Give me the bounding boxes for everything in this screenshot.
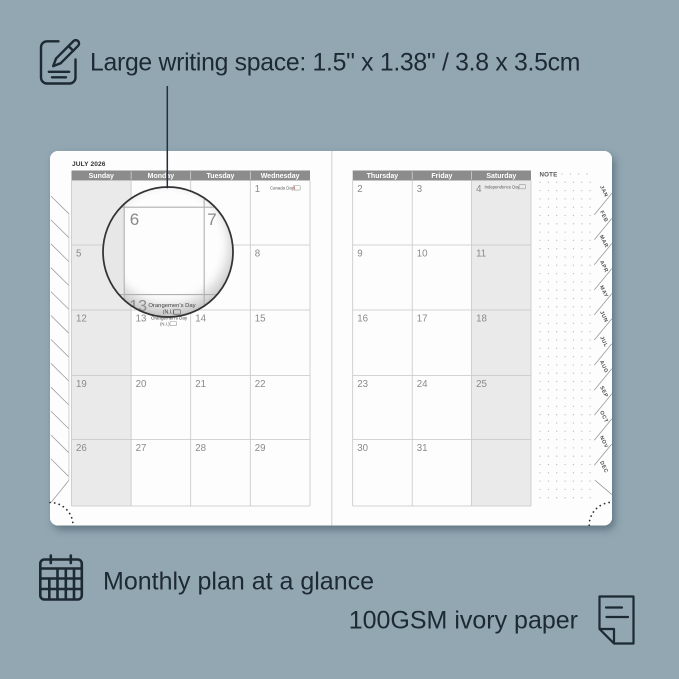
svg-text:JULY 2026: JULY 2026 xyxy=(72,161,106,168)
svg-text:16: 16 xyxy=(357,314,368,325)
svg-text:NOTE: NOTE xyxy=(540,172,558,179)
svg-text:Independence Day: Independence Day xyxy=(485,184,521,189)
svg-text:31: 31 xyxy=(417,443,428,454)
svg-text:20: 20 xyxy=(136,379,147,390)
svg-text:Monthly plan at a glance: Monthly plan at a glance xyxy=(103,568,374,596)
svg-text:10: 10 xyxy=(417,249,428,260)
svg-text:Wednesday: Wednesday xyxy=(261,173,300,180)
svg-text:100GSM ivory paper: 100GSM ivory paper xyxy=(349,607,578,635)
svg-text:6: 6 xyxy=(130,210,139,229)
svg-text:Orangemen's Day: Orangemen's Day xyxy=(148,303,195,309)
svg-text:Large writing space: 1.5" x 1.: Large writing space: 1.5" x 1.38" / 3.8 … xyxy=(90,50,580,77)
svg-text:17: 17 xyxy=(417,314,428,325)
svg-text:29: 29 xyxy=(255,443,266,454)
svg-text:Tuesday: Tuesday xyxy=(207,173,235,180)
svg-text:21: 21 xyxy=(195,379,206,390)
svg-text:27: 27 xyxy=(136,443,147,454)
svg-text:19: 19 xyxy=(76,379,87,390)
svg-text:9: 9 xyxy=(357,249,362,260)
svg-text:3: 3 xyxy=(417,184,422,195)
svg-text:12: 12 xyxy=(76,314,87,325)
svg-text:1: 1 xyxy=(255,184,260,195)
svg-text:18: 18 xyxy=(476,314,487,325)
svg-text:8: 8 xyxy=(255,249,260,260)
svg-text:14: 14 xyxy=(195,314,206,325)
svg-text:Monday: Monday xyxy=(148,173,175,180)
svg-text:Saturday: Saturday xyxy=(486,173,516,180)
svg-text:Sunday: Sunday xyxy=(89,173,114,180)
svg-text:(N.I.): (N.I.) xyxy=(163,310,175,316)
svg-text:5: 5 xyxy=(76,249,81,260)
svg-text:13: 13 xyxy=(136,314,147,325)
svg-text:15: 15 xyxy=(255,314,266,325)
svg-text:7: 7 xyxy=(207,210,216,229)
svg-text:11: 11 xyxy=(476,249,486,260)
svg-text:22: 22 xyxy=(255,379,266,390)
svg-text:30: 30 xyxy=(357,443,368,454)
svg-text:4: 4 xyxy=(476,184,482,195)
svg-text:2: 2 xyxy=(357,184,362,195)
svg-text:24: 24 xyxy=(417,379,428,390)
svg-text:Thursday: Thursday xyxy=(367,173,399,180)
svg-text:28: 28 xyxy=(195,443,206,454)
svg-text:23: 23 xyxy=(357,379,368,390)
svg-text:Canada Day: Canada Day xyxy=(270,186,295,191)
svg-text:(N.I.): (N.I.) xyxy=(160,321,170,326)
svg-text:26: 26 xyxy=(76,443,87,454)
svg-text:Friday: Friday xyxy=(431,173,452,180)
svg-text:25: 25 xyxy=(476,379,487,390)
